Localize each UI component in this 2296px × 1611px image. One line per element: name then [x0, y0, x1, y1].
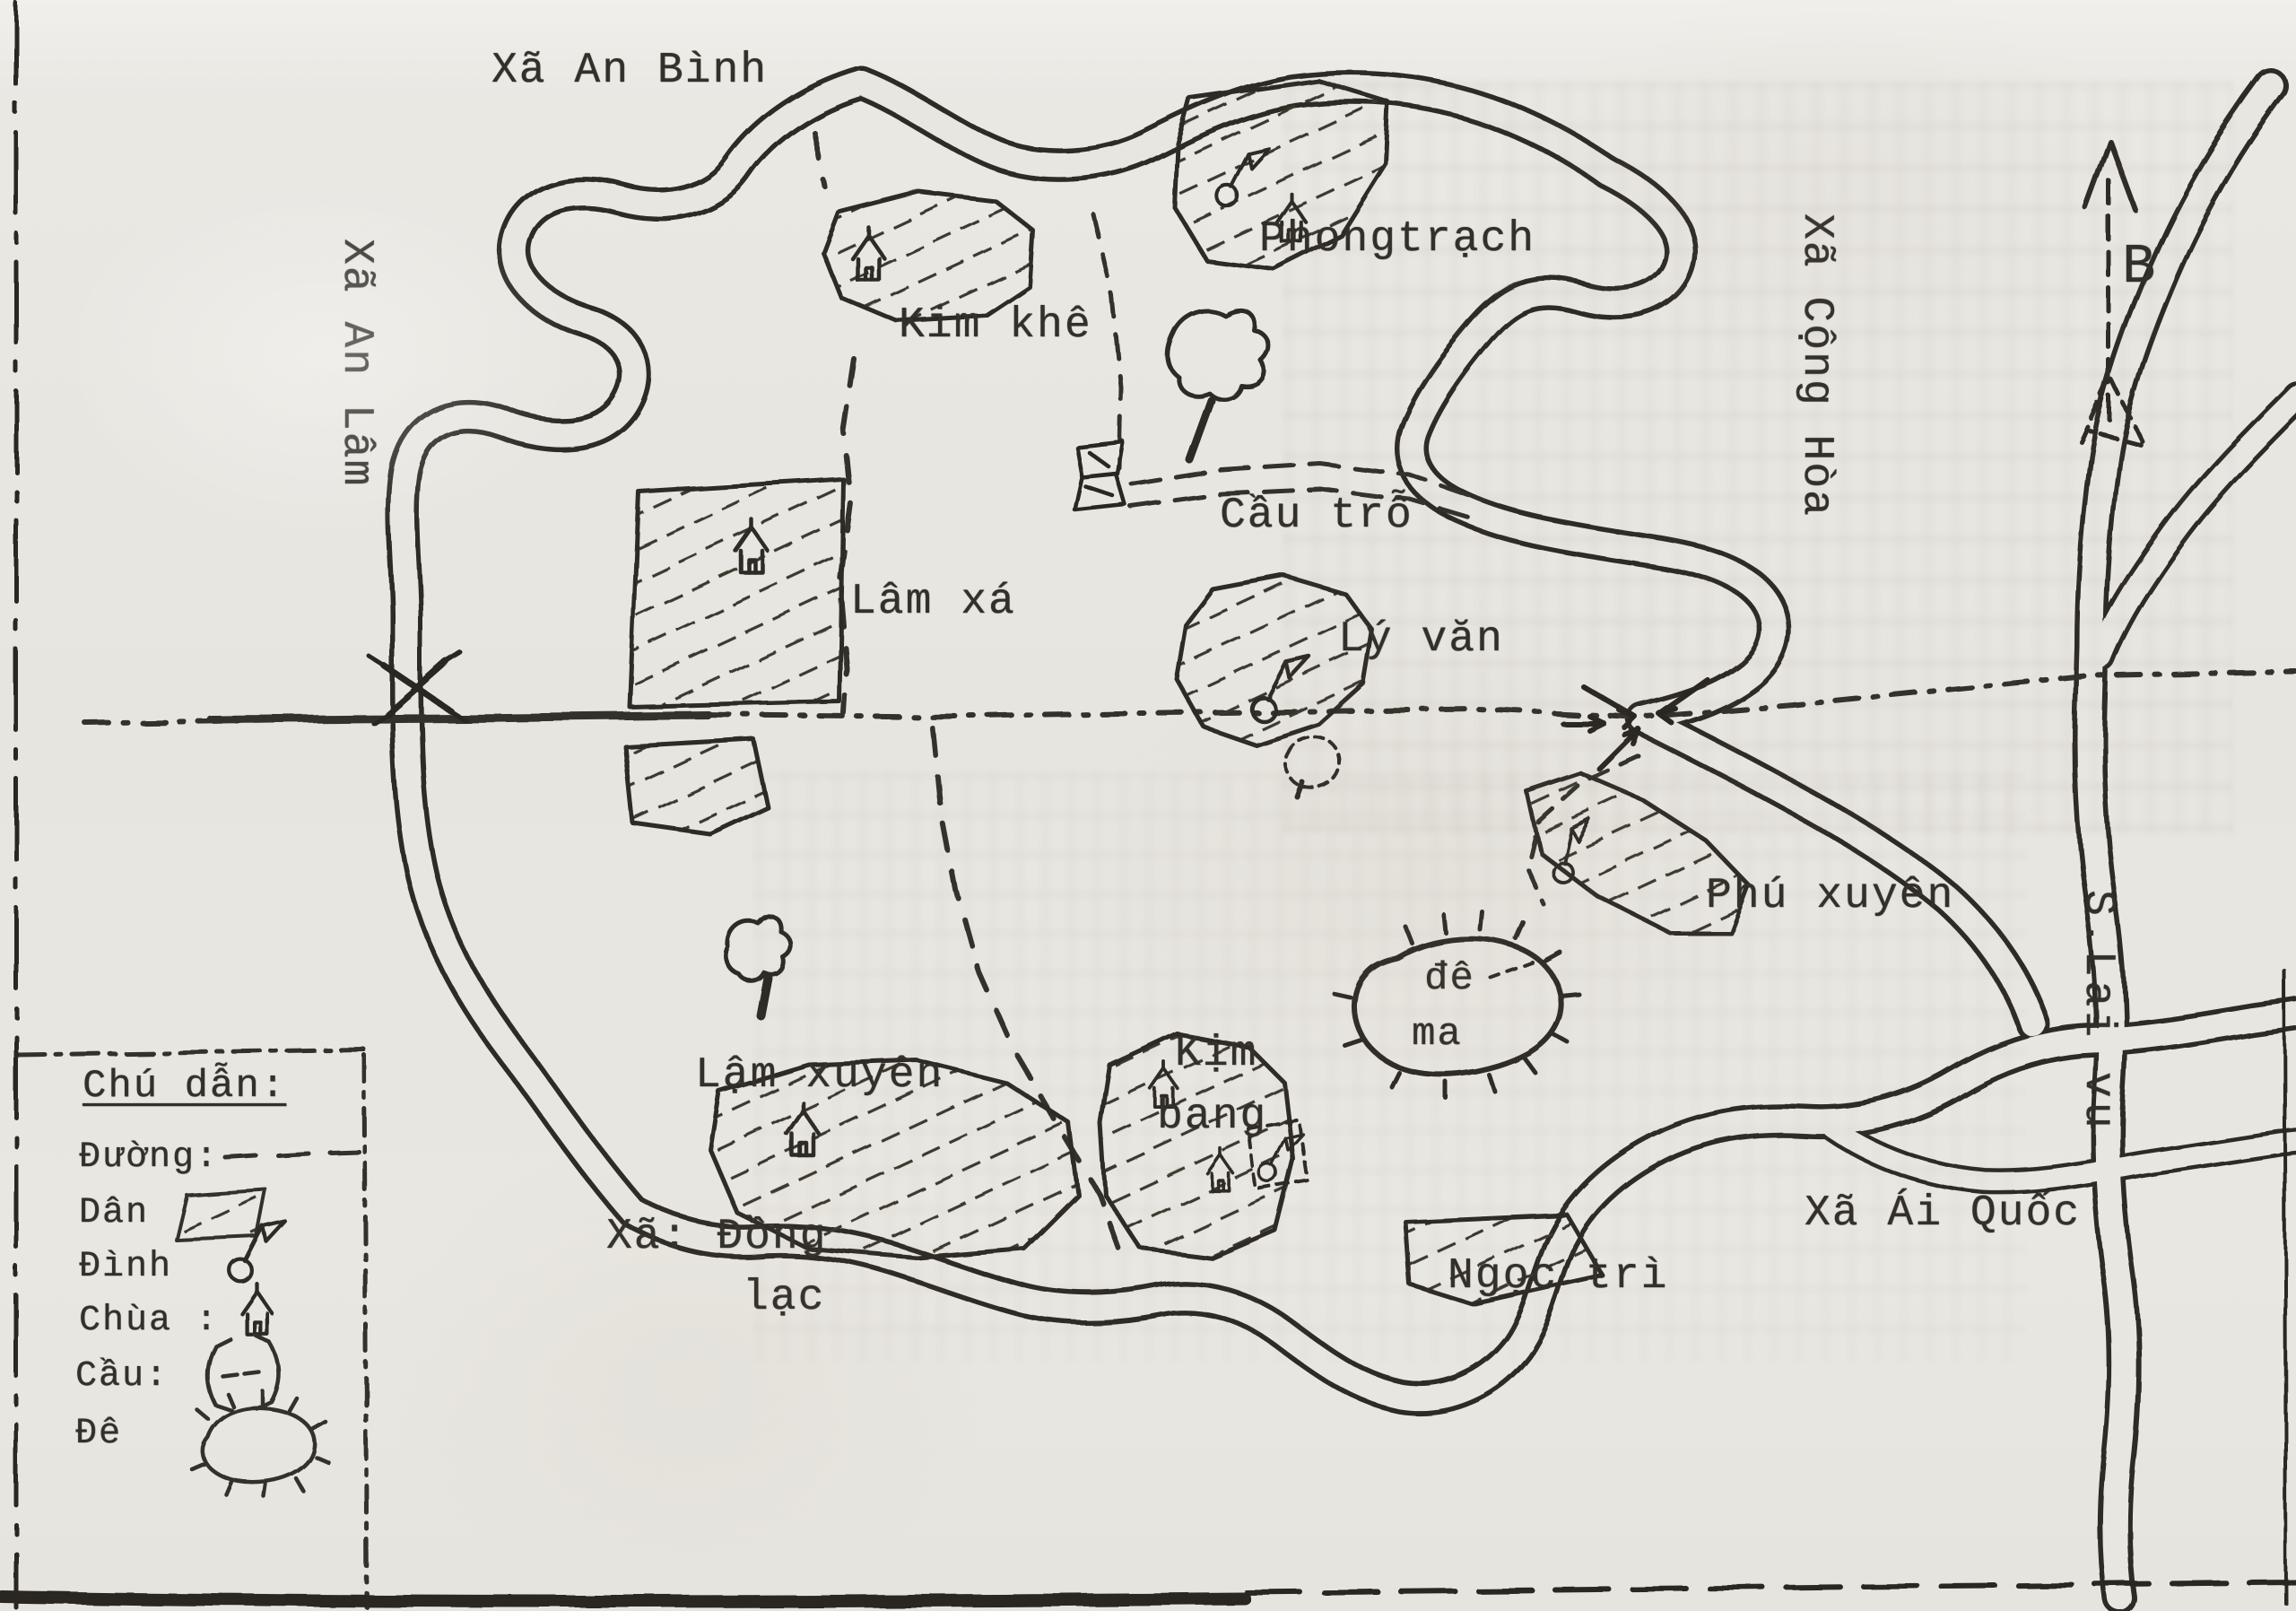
- label-lam-xuyen: Lậm xuyên: [695, 1051, 944, 1100]
- bottom-dashes: [1247, 1582, 2296, 1593]
- label-xa-dong-lac-line1: Xã: Đồng: [606, 1213, 827, 1261]
- label-lam-xa: Lâm xá: [850, 578, 1016, 626]
- dike-leader-dash: [1491, 962, 1535, 978]
- label-phong-trach: Phongtrạch: [1259, 215, 1535, 264]
- settlement-small-south-of-road: [625, 739, 768, 834]
- label-kim-bang-line2: bang: [1157, 1093, 1267, 1141]
- legend-item-pagoda: Chùa :: [79, 1301, 219, 1341]
- settlement-lam-xa: [630, 479, 843, 707]
- label-xa-an-lam: Xã An Lâm: [332, 239, 380, 487]
- kim-khe-road: [1092, 213, 1121, 468]
- label-de-ma-line2: ma: [1412, 1012, 1463, 1057]
- pagoda-icon: [241, 1284, 272, 1334]
- label-kim-bang-line1: Kịm: [1175, 1030, 1257, 1078]
- legend-item-dike: Đê: [75, 1414, 122, 1454]
- label-ly-van: Lý văn: [1338, 615, 1504, 664]
- rivers: [403, 83, 2296, 1598]
- legend-dan-swatch: [176, 1189, 265, 1240]
- map-canvas: Xã An Bình Xã An Lâm Kim khê Phongtrạch …: [0, 0, 2296, 1611]
- compass-north-letter: B: [2122, 235, 2157, 299]
- label-xa-an-binh: Xã An Bình: [491, 47, 768, 95]
- right-edge-line: [2284, 971, 2286, 1604]
- label-cau-tro: Cầu trỗ: [1220, 492, 1413, 540]
- legend-border-right: [364, 1055, 367, 1607]
- legend-item-settlement: Dân: [79, 1193, 149, 1233]
- pond-icon: [1168, 310, 1269, 459]
- legend-border-top: [18, 1049, 364, 1055]
- legend-item-communal-house: Đình: [79, 1247, 172, 1287]
- shrine-icon: [726, 917, 790, 1015]
- label-xa-cong-hoa: Xã Cộng Hòa: [1792, 213, 1840, 518]
- label-ngoc-tri: Ngọc trì: [1448, 1252, 1668, 1301]
- bridge-crossing-icon: [207, 1335, 279, 1410]
- legend-title: Chú dẫn:: [83, 1064, 286, 1109]
- label-de-ma-line1: đê: [1424, 956, 1475, 1001]
- label-phu-xuyen: Phú xuyên: [1706, 872, 1954, 920]
- label-xa-dong-lac-line2: lạc: [743, 1274, 825, 1322]
- dike-de-ma: [1335, 911, 1578, 1098]
- dike-mound-icon: [192, 1390, 328, 1496]
- legend-item-bridge: Cầu:: [75, 1356, 169, 1397]
- bottom-band: [2, 1597, 1245, 1602]
- marsh-icon: [1284, 736, 1339, 797]
- legend-item-road: Đường:: [79, 1137, 219, 1178]
- label-s-lai-vu: S.Lai vu: [2074, 890, 2122, 1132]
- label-xa-ai-quoc: Xã Ái Quốc: [1805, 1189, 2081, 1238]
- north-road-upper-dash: [814, 133, 825, 187]
- cau-tro-bridge-icon: [1074, 441, 1125, 509]
- legend-road-sample: [226, 1152, 359, 1158]
- label-kim-khe: Kim khê: [899, 301, 1092, 350]
